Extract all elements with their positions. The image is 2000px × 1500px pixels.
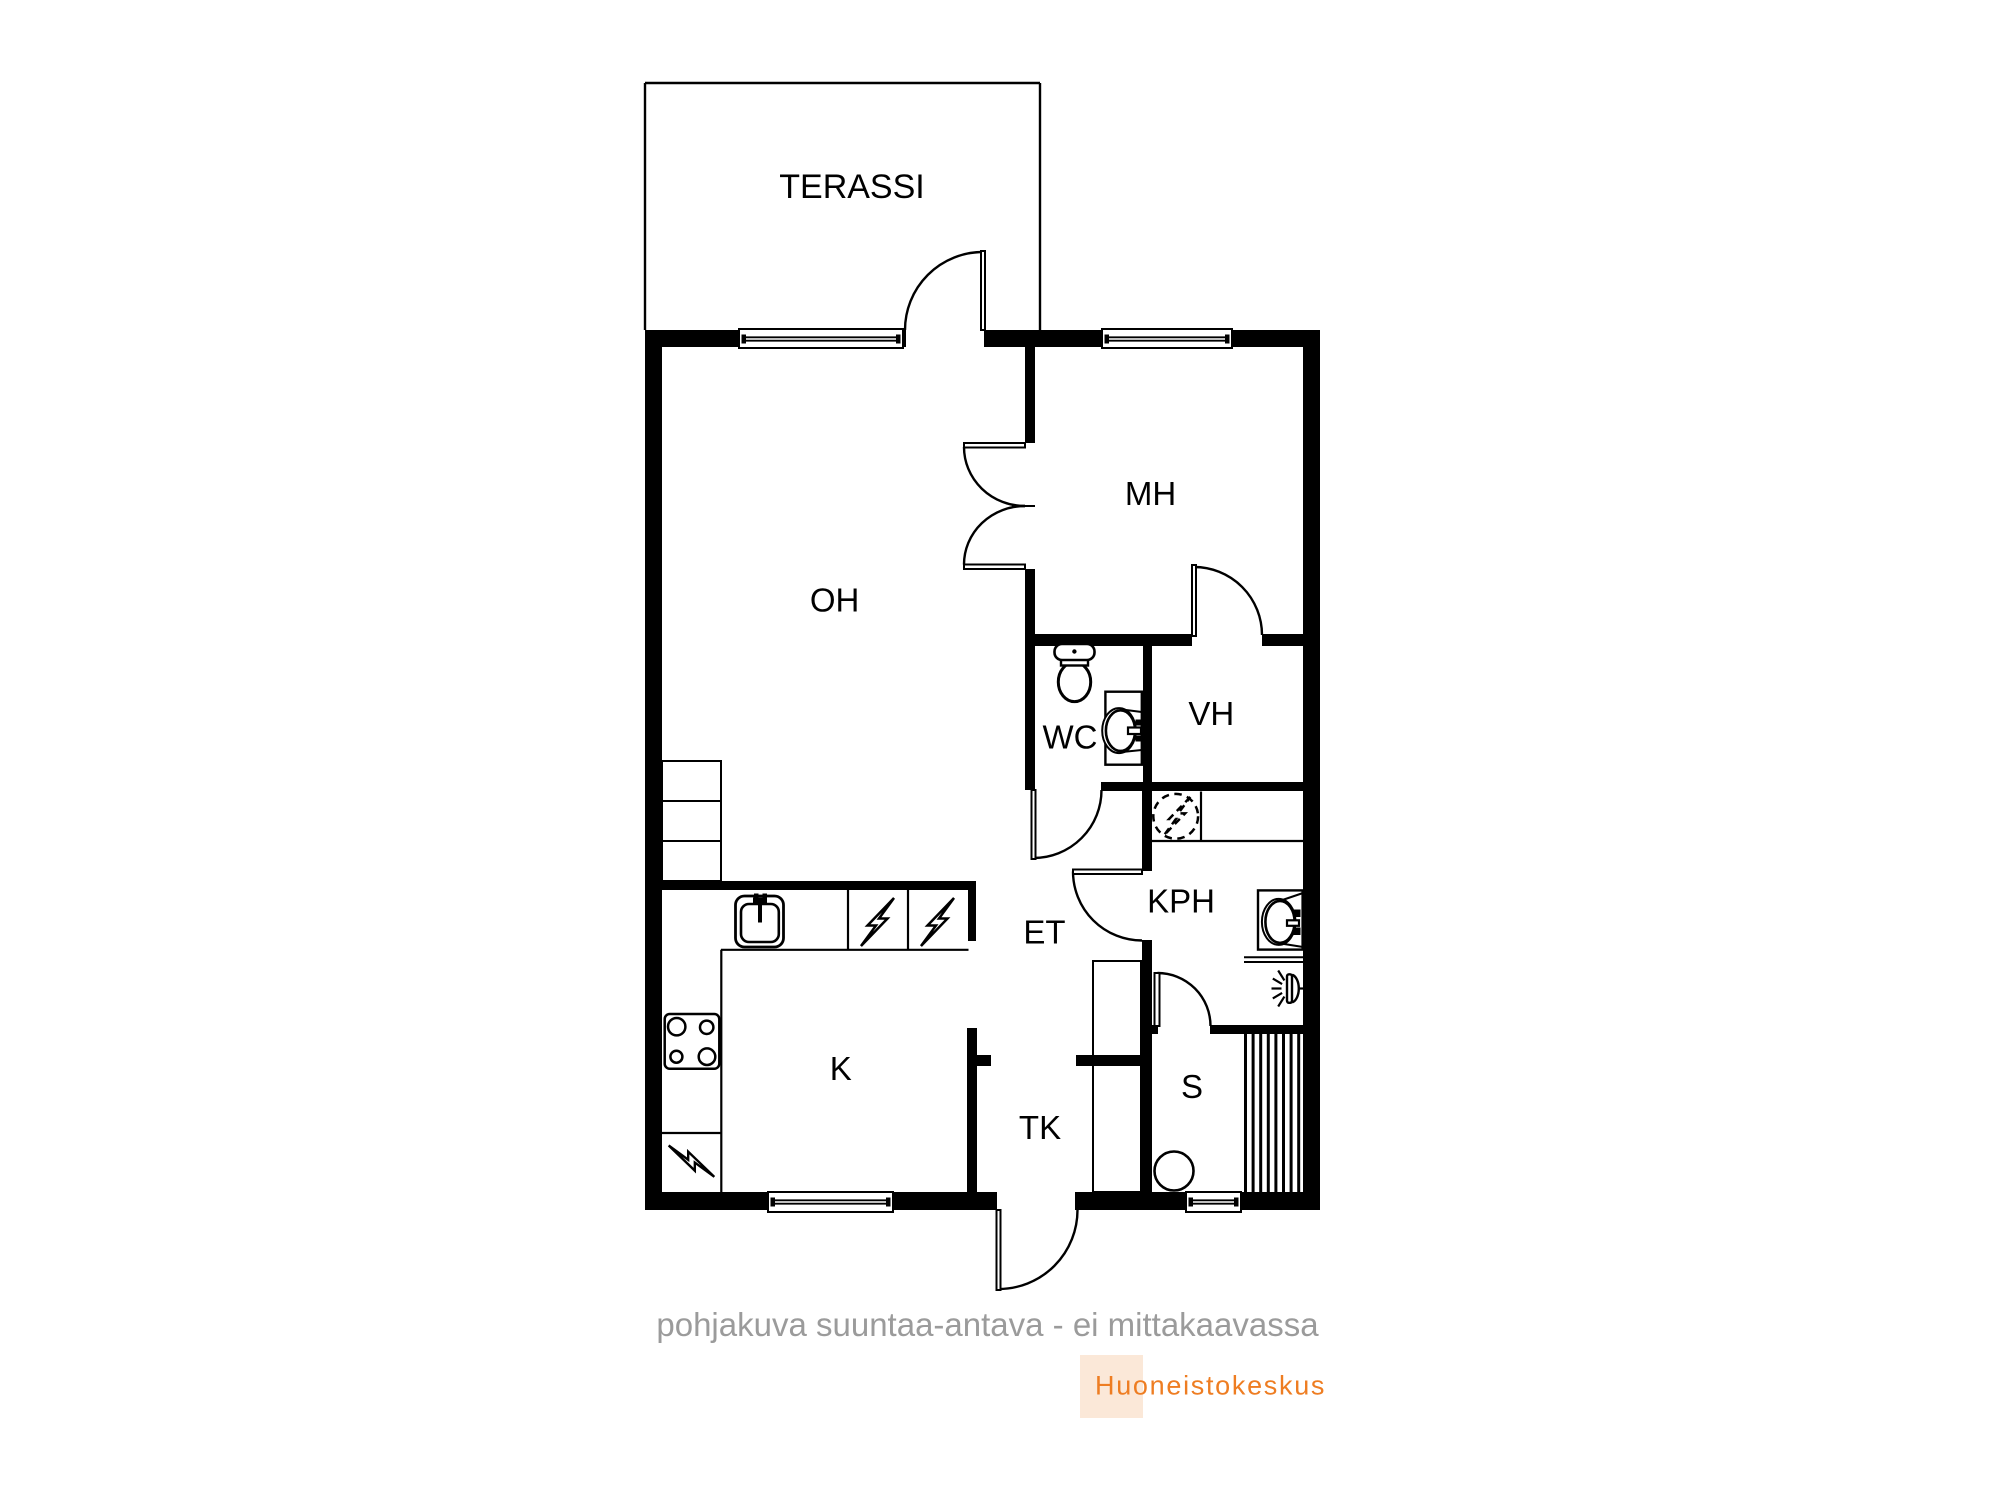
svg-text:VH: VH: [1188, 695, 1234, 732]
svg-text:ET: ET: [1023, 913, 1065, 950]
svg-text:MH: MH: [1125, 475, 1176, 512]
svg-text:pohjakuva suuntaa-antava - ei: pohjakuva suuntaa-antava - ei mittakaava…: [656, 1306, 1319, 1343]
svg-text:KPH: KPH: [1147, 883, 1215, 920]
svg-text:TK: TK: [1019, 1109, 1061, 1146]
svg-text:WC: WC: [1043, 719, 1098, 756]
svg-text:Huoneistokeskus: Huoneistokeskus: [1095, 1371, 1326, 1401]
svg-text:K: K: [830, 1050, 852, 1087]
svg-text:TERASSI: TERASSI: [779, 168, 924, 206]
svg-text:S: S: [1181, 1068, 1203, 1105]
svg-text:OH: OH: [810, 582, 860, 619]
